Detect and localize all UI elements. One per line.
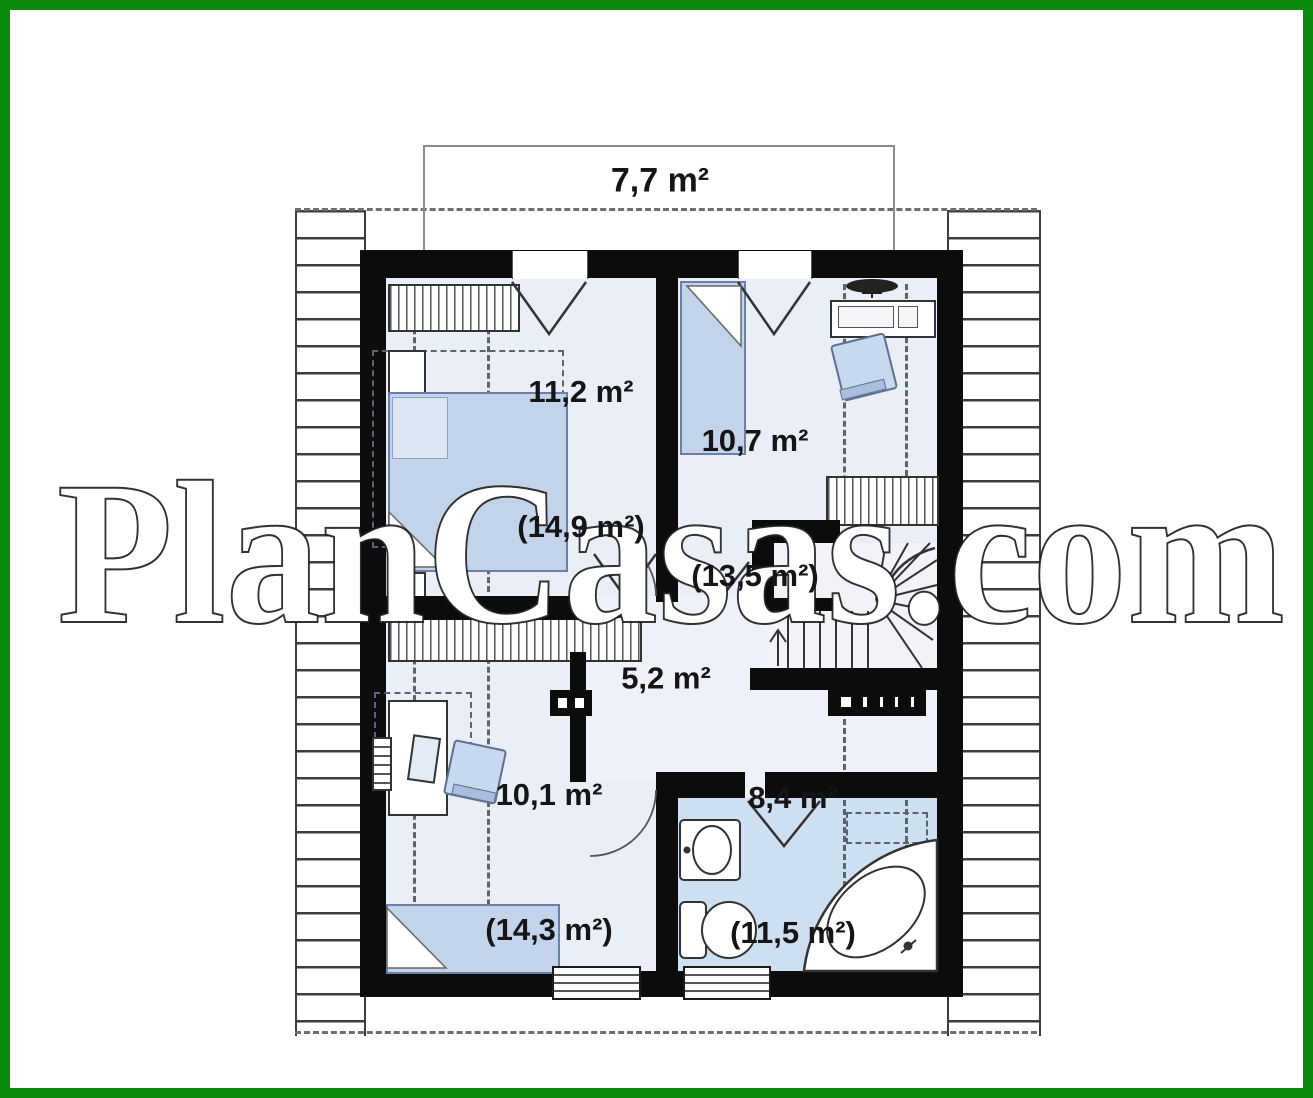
slope-dash-box (846, 812, 928, 844)
attic-area-outline-left (423, 145, 425, 252)
desk-item (898, 306, 918, 328)
floor-plan-page: PlanCasas.com 7,7 m² 11,2 m² (14,9 m²) 1… (0, 0, 1313, 1098)
room-label-bathroom: 8,4 m² (11,5 m²) (730, 685, 856, 1045)
attic-area-outline-right (893, 145, 895, 252)
room-label-bedroom-bottom-left: 10,1 m² (14,3 m²) (485, 682, 612, 1042)
roof-window-opening (738, 251, 812, 279)
keyboard (838, 306, 894, 328)
roof-outline-dashed-bottom (295, 1031, 1037, 1034)
roof-window-opening (512, 251, 588, 279)
wall (656, 250, 678, 602)
room-label-hallway: 5,2 m² (621, 566, 711, 791)
nightstand (388, 350, 426, 394)
pillow (392, 397, 448, 459)
radiator (372, 737, 392, 791)
wall-bathroom-left (656, 772, 678, 997)
roof-eave-hatch-left (295, 210, 366, 1036)
wardrobe (388, 284, 520, 332)
wardrobe (826, 476, 939, 526)
attic-area-label: 7,7 m² (611, 69, 709, 294)
